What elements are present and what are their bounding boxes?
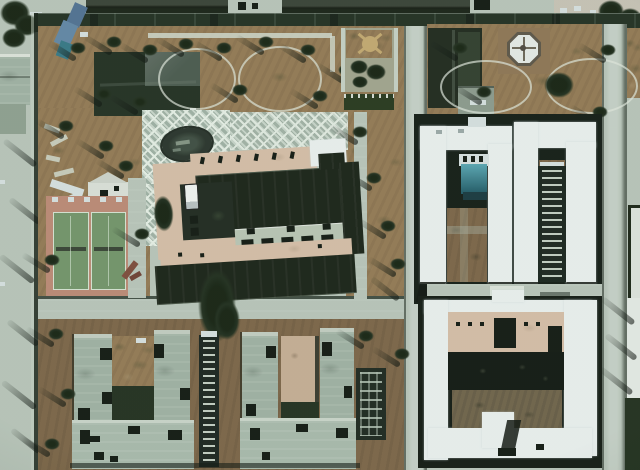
ladder-walkway: [199, 335, 219, 467]
gable-roof: [88, 172, 128, 183]
garden-path: [330, 36, 335, 72]
tree-icon: [366, 172, 382, 184]
tree-icon: [98, 140, 114, 152]
tree-icon: [132, 96, 148, 108]
tree-icon: [178, 38, 194, 50]
tree-icon: [452, 42, 468, 54]
tree-icon: [2, 28, 26, 48]
inner-shadow-band: [448, 352, 564, 390]
tree-icon: [300, 44, 316, 56]
trellis: [356, 368, 386, 440]
garden-path-loop: [158, 48, 236, 110]
barracks-courtyard: [112, 336, 154, 386]
tree-icon: [44, 438, 60, 450]
teal-structure: [461, 164, 487, 194]
bush-icon: [352, 76, 368, 88]
inner-pink-block: [281, 336, 319, 402]
tree-icon: [48, 328, 64, 340]
bush-icon: [366, 64, 386, 80]
satellite-image: Overhead satellite view of a walled inst…: [0, 0, 640, 470]
tree-icon: [232, 84, 248, 96]
tree-icon: [142, 44, 158, 56]
tree-icon: [380, 220, 396, 232]
barracks-east: [240, 325, 356, 466]
central-building: [141, 131, 368, 304]
tree-icon: [70, 42, 86, 54]
tennis-court-left: [53, 212, 89, 290]
top-edge-building-roof: [86, 0, 228, 13]
hedge-row: [344, 94, 394, 110]
crenel: [287, 226, 295, 232]
tree-icon: [312, 90, 328, 102]
tree-icon: [394, 348, 410, 360]
tree-icon: [600, 44, 616, 56]
crenel: [247, 228, 255, 234]
left-edge-building: [0, 104, 26, 134]
tree-icon: [44, 254, 60, 266]
tree-cluster: [214, 300, 240, 340]
tree-icon: [390, 258, 406, 270]
tree-icon: [476, 86, 492, 98]
right-edge-building: [628, 205, 640, 304]
tennis-court-right: [91, 212, 126, 290]
tree-icon: [118, 160, 134, 172]
tree-icon: [358, 330, 374, 342]
garden-courtyard: [343, 28, 397, 92]
ladder-walkway: [538, 166, 566, 282]
tree-icon: [544, 72, 574, 98]
barracks-west: [72, 327, 194, 466]
tree-icon: [60, 388, 76, 400]
tree-icon: [216, 42, 232, 54]
tree-icon: [58, 120, 74, 132]
service-truck: [184, 183, 200, 210]
crenel: [322, 223, 330, 229]
tree-icon: [258, 36, 274, 48]
aerial-scene: Overhead satellite view of a walled inst…: [0, 0, 640, 470]
left-edge-building: [0, 54, 30, 105]
